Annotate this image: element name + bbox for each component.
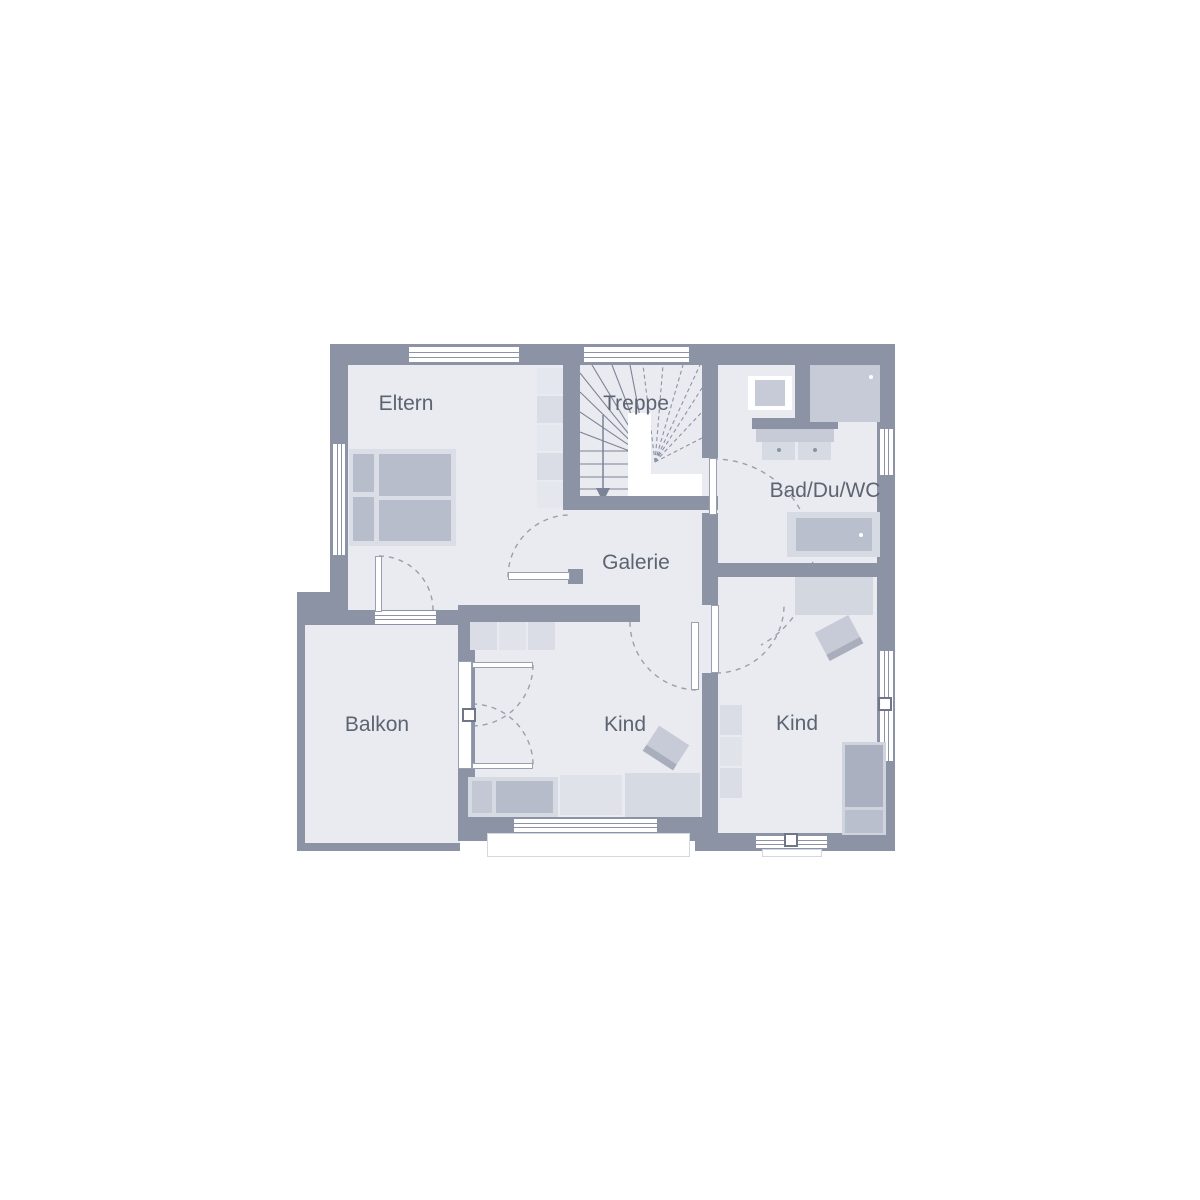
room-label-bad: Bad/Du/WC [770,479,881,503]
floor-plan: Eltern Treppe Bad/Du/WC Galerie Balkon K… [0,0,1200,1200]
wall-segment [702,673,718,846]
window [408,346,520,363]
bed-pillow [472,781,492,813]
door-swing-french-bottom [472,704,533,765]
desk-icon [625,773,700,817]
desk-icon [795,577,873,615]
bed-mattress [379,500,451,541]
wall-segment [563,365,580,510]
door-swing-french-top [472,665,533,726]
door-leaf [691,622,699,690]
wall-segment [795,365,810,422]
sink-tap [813,448,817,452]
window [879,428,894,476]
stair-void [628,474,702,496]
wall-segment [702,563,895,577]
door-swing-kind-left [630,622,698,690]
wall-segment [458,605,640,622]
french-door-leaf [472,763,533,769]
desk-icon [560,775,622,815]
door-jamb-stub [568,569,583,584]
room-label-galerie: Galerie [602,551,670,575]
bed-mattress [845,745,883,807]
room-label-kind-left: Kind [604,713,646,737]
wardrobe-icon [470,622,555,650]
room-label-kind-right: Kind [776,712,818,736]
bed-pillow [845,810,883,833]
door-sill [762,849,822,857]
shower-icon [810,365,880,422]
door-leaf [508,572,570,580]
bed-mattress [496,781,553,813]
window-sill [487,833,690,857]
french-door-leaf [472,662,533,668]
window [513,818,658,833]
door-swing-kind-right [716,605,784,673]
sink-tap [777,448,781,452]
door-handle [462,708,476,722]
wardrobe-icon [720,705,742,798]
window [332,443,346,556]
stair-direction-arrow [596,488,610,496]
bed-pillow [353,454,374,492]
toilet-bowl [755,380,785,406]
wall-segment [702,365,718,458]
balkon-railing-bottom [297,843,460,851]
bed-mattress [379,454,451,496]
staircase [580,365,702,496]
door-swing-eltern-balkon [379,556,433,610]
window-handle [878,697,892,711]
wall-segment [563,496,718,510]
door-swing-eltern [508,515,570,577]
balcony-door [374,610,437,625]
vanity-counter [756,429,834,442]
room-label-balkon: Balkon [345,713,409,737]
balkon-railing-left [297,592,305,851]
door-swing-arcs [0,0,1200,1200]
bed-pillow [353,497,374,541]
wall-segment [702,513,718,605]
door-leaf [709,458,717,515]
door-handle [784,833,798,847]
room-label-eltern: Eltern [379,392,434,416]
bathtub-drain [859,533,863,537]
door-leaf [711,605,719,673]
shower-drain [869,375,873,379]
window [583,346,690,363]
room-label-treppe: Treppe [603,392,669,416]
door-leaf [375,556,382,612]
wardrobe-icon [537,368,563,508]
